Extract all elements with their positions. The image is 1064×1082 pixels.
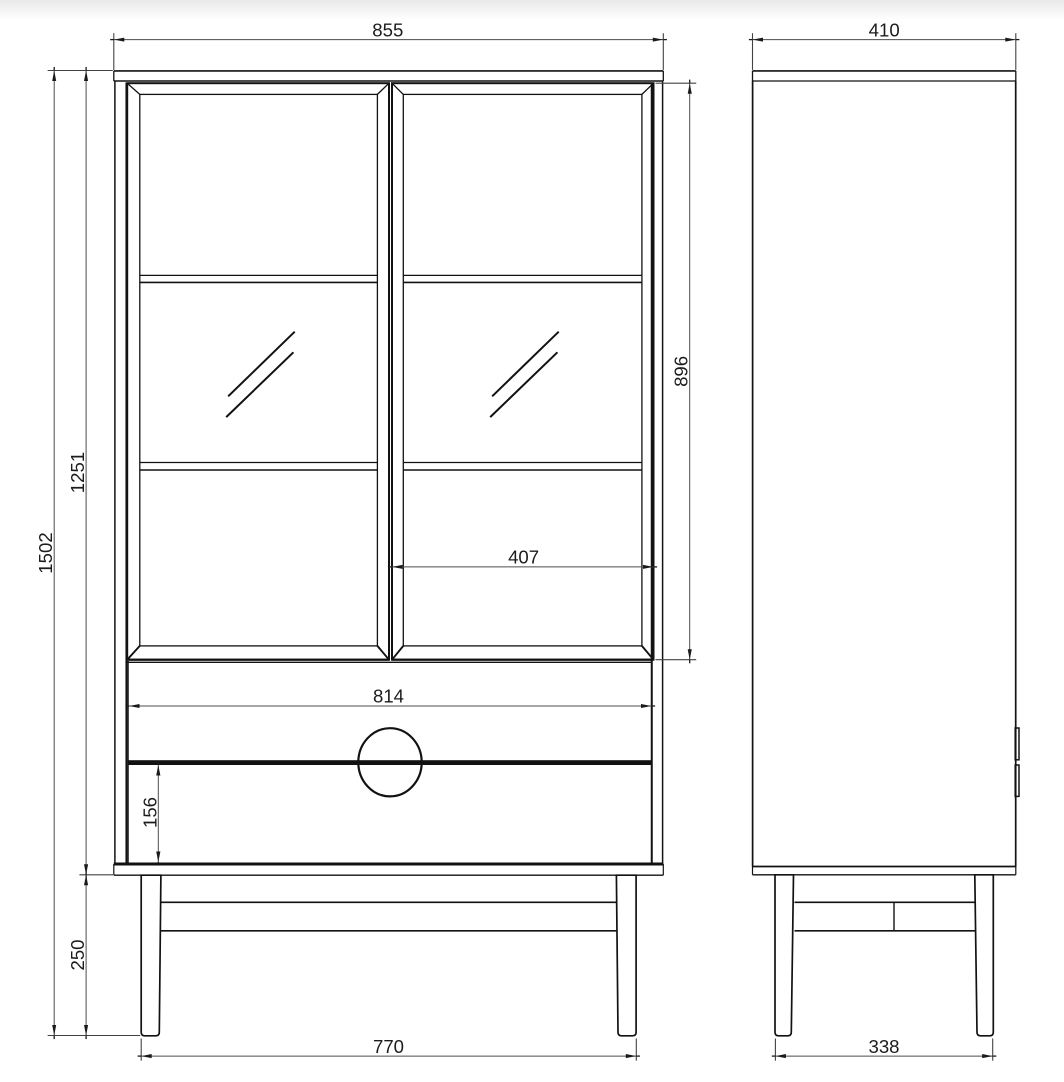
svg-text:770: 770 (373, 1036, 404, 1057)
svg-text:855: 855 (372, 20, 403, 41)
svg-text:896: 896 (671, 356, 692, 387)
svg-text:156: 156 (139, 797, 160, 828)
svg-text:814: 814 (373, 686, 404, 707)
svg-text:250: 250 (67, 939, 88, 970)
svg-text:338: 338 (868, 1036, 899, 1057)
svg-text:1502: 1502 (35, 532, 56, 573)
svg-text:410: 410 (869, 20, 900, 41)
svg-text:1251: 1251 (67, 452, 88, 493)
svg-text:407: 407 (508, 547, 539, 568)
